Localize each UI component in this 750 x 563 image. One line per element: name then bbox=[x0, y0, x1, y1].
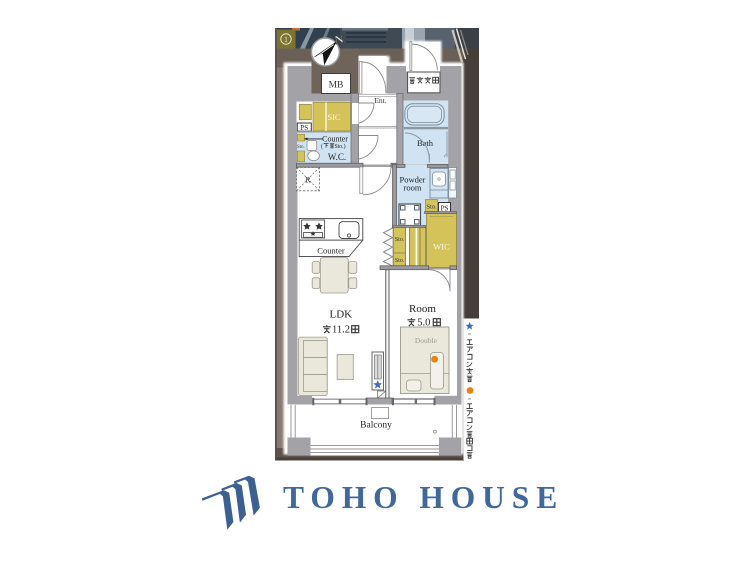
svg-text:LDK: LDK bbox=[329, 309, 352, 321]
svg-text:WIC: WIC bbox=[433, 242, 450, 252]
svg-text:Room: Room bbox=[409, 303, 436, 315]
svg-text:1: 1 bbox=[284, 35, 288, 44]
svg-text:W.C.: W.C. bbox=[328, 152, 346, 162]
svg-text:Ent.: Ent. bbox=[374, 96, 386, 105]
svg-text:PS: PS bbox=[300, 124, 308, 132]
svg-text:Balcony: Balcony bbox=[360, 421, 392, 431]
svg-text:Sto.): Sto.) bbox=[334, 143, 345, 150]
svg-text:Counter: Counter bbox=[317, 246, 345, 256]
svg-text:MB: MB bbox=[329, 81, 344, 91]
svg-text:room: room bbox=[404, 183, 422, 193]
svg-text:Counter: Counter bbox=[322, 135, 348, 144]
svg-text:Bath: Bath bbox=[417, 138, 434, 148]
svg-text:Double: Double bbox=[415, 336, 438, 345]
svg-text:R: R bbox=[305, 176, 311, 185]
svg-text:TOHO HOUSE: TOHO HOUSE bbox=[283, 480, 564, 515]
svg-text:(: ( bbox=[321, 143, 323, 150]
svg-text:Sto.: Sto. bbox=[395, 237, 405, 243]
svg-text:SIC: SIC bbox=[327, 112, 341, 122]
svg-text:Sto.: Sto. bbox=[297, 145, 305, 150]
svg-text:Sto.: Sto. bbox=[395, 258, 405, 264]
svg-text:Sto.: Sto. bbox=[426, 204, 437, 211]
svg-text:11.2: 11.2 bbox=[332, 325, 350, 336]
